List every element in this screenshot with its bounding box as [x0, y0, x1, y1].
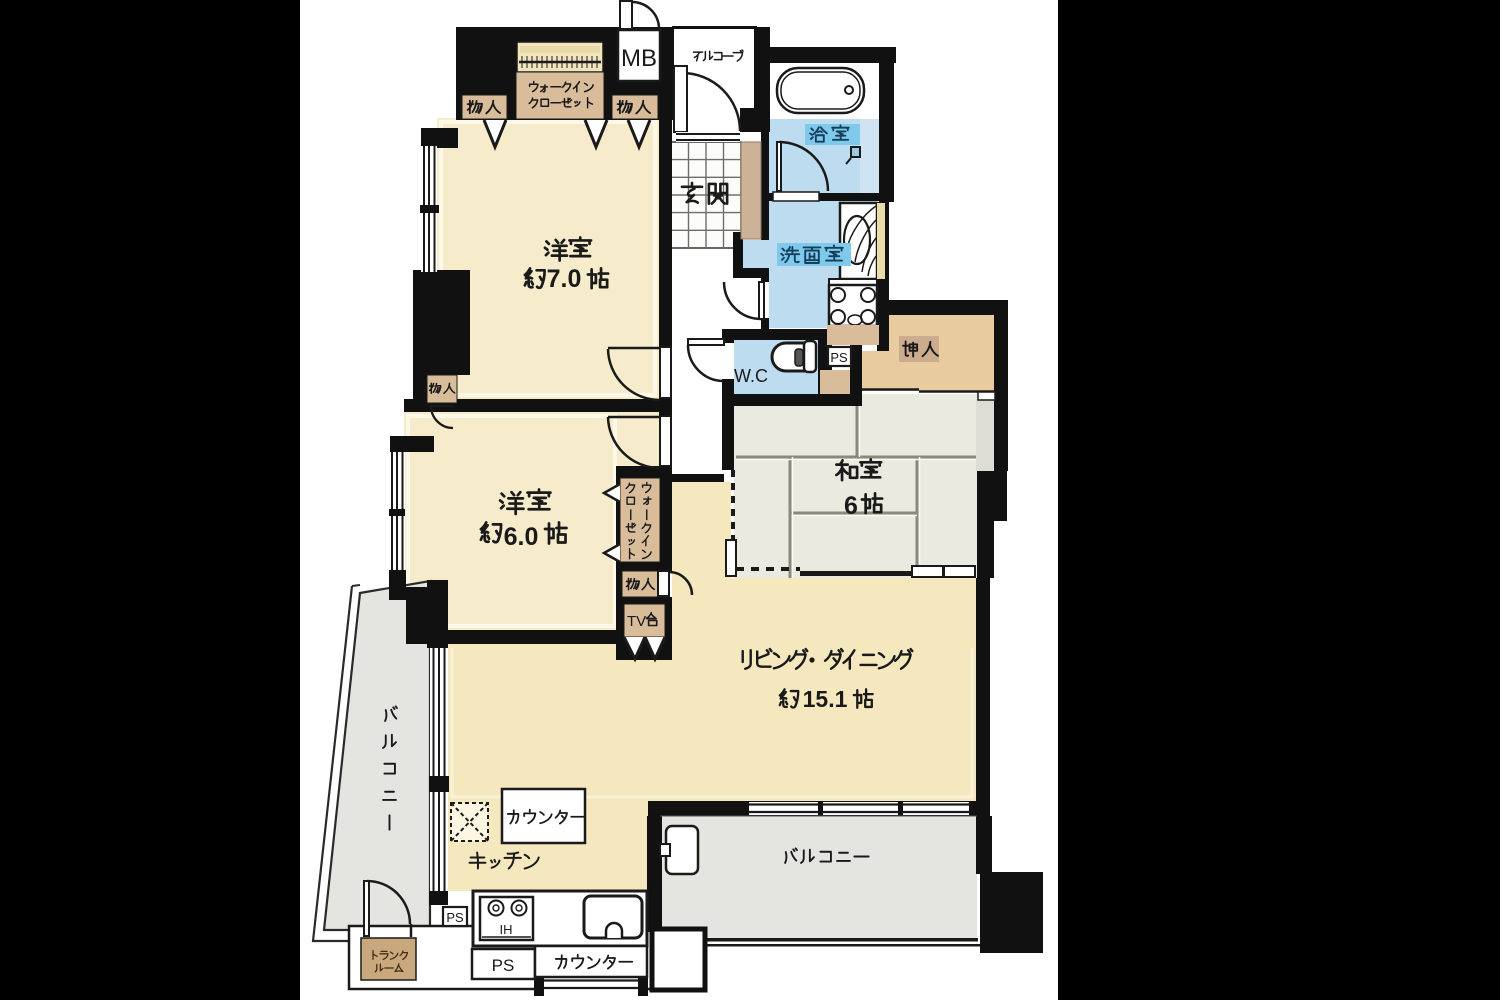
svg-text:PS: PS [492, 956, 515, 975]
svg-text:W.C: W.C [734, 366, 768, 386]
svg-text:PS: PS [830, 350, 848, 365]
svg-text:IH: IH [500, 922, 513, 937]
svg-text:6.0: 6.0 [504, 523, 539, 551]
svg-text:PS: PS [446, 910, 464, 925]
svg-text:6: 6 [844, 492, 858, 520]
svg-text:7.0: 7.0 [547, 265, 582, 293]
svg-text:MB: MB [621, 45, 657, 72]
svg-text:TV: TV [627, 613, 646, 630]
svg-text:15.1: 15.1 [803, 686, 848, 712]
